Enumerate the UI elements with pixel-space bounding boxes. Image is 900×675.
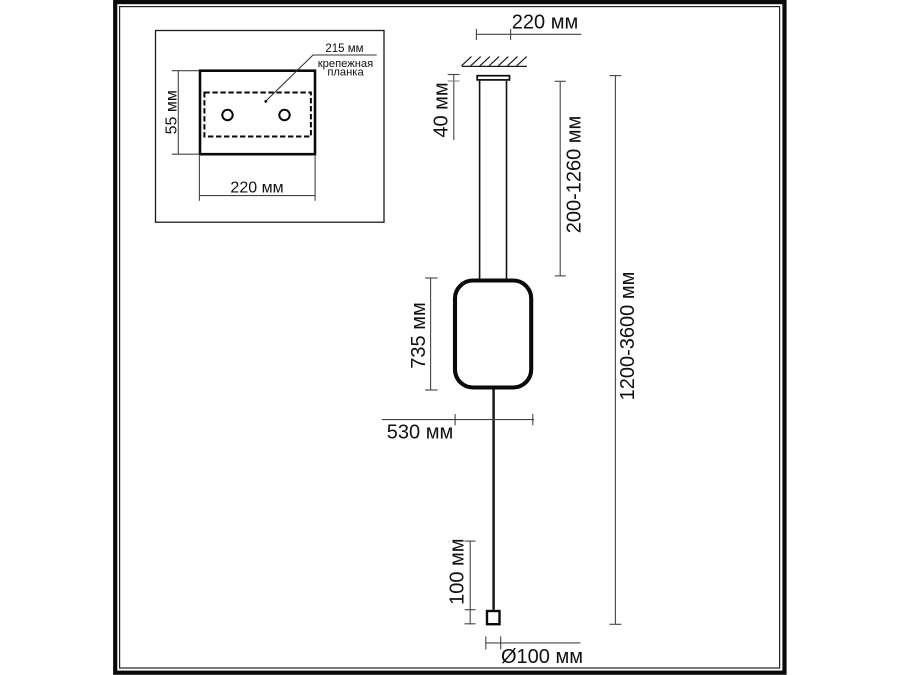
- svg-text:55 мм: 55 мм: [164, 90, 181, 134]
- svg-text:215 мм: 215 мм: [325, 43, 363, 55]
- svg-text:Ø100 мм: Ø100 мм: [501, 646, 583, 668]
- svg-text:735 мм: 735 мм: [408, 302, 430, 368]
- svg-text:530 мм: 530 мм: [387, 422, 453, 444]
- svg-text:1200-3600 мм: 1200-3600 мм: [617, 272, 639, 401]
- svg-text:200-1260 мм: 200-1260 мм: [563, 116, 585, 234]
- svg-text:220 мм: 220 мм: [230, 180, 283, 197]
- svg-text:40 мм: 40 мм: [431, 82, 453, 137]
- svg-text:100 мм: 100 мм: [447, 538, 469, 604]
- svg-text:планка: планка: [327, 67, 364, 79]
- svg-text:220 мм: 220 мм: [512, 11, 578, 33]
